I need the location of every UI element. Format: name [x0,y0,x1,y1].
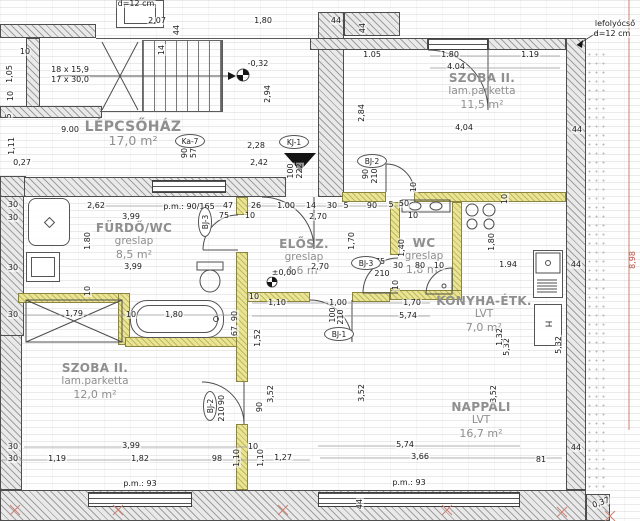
room-material: LVT [451,414,510,427]
dimension-label: 10 [244,212,256,220]
dimension-label: 10 [248,293,260,301]
floor-plan: H [0,0,640,521]
dimension-label: 2,28 [246,142,266,150]
door-tag-bj-3: BJ-3 [198,207,212,237]
dimension-label: 1.00 [276,202,296,210]
dimension-label: 67 [231,325,239,337]
room-area: 16,7 m² [451,427,510,440]
dimension-label: 2,94 [264,84,272,104]
dimension-label: 1,11 [8,136,16,156]
dimension-label: 47 [222,202,234,210]
dimension-label: 30 [7,201,19,209]
dimension-label: lefolyócső [594,20,636,28]
dimension-label: 5,74 [398,312,418,320]
room-area: 8,5 m² [96,248,172,261]
dimension-label: 3,52 [358,383,366,403]
dimension-label: 4.04 [446,63,466,71]
room-material: greslap [96,235,172,248]
dimension-label: 100 [287,162,295,179]
dimension-label: 1,10 [267,299,287,307]
dimension-label: 5 [342,202,349,210]
dimension-label: 75 [218,212,230,220]
hob-burner [483,204,495,216]
door-tag-kj-1: KJ-1 [279,135,309,149]
dimension-label: 2,70 [310,263,330,271]
dimension-label: 3,99 [123,263,143,271]
room-name: FÜRDŐ/WC [96,222,172,235]
dimension-label: 18 x 15,9 [50,66,90,74]
dimension-label: 44 [359,22,367,34]
door-tag-ka-7: Ka-7 [175,134,205,148]
kitchen-sink-bowl [536,253,560,273]
dimension-label: 44 [571,126,583,134]
room-name: SZOBA II. [61,362,128,375]
dimension-label: 10 [501,193,509,205]
dimension-label: 10 [19,48,31,56]
dimension-label: 90 [218,394,226,406]
dimension-label: 10 [433,262,445,270]
dimension-label: 3,99 [121,213,141,221]
room-label: NAPPALILVT16,7 m² [451,401,510,440]
dimension-label: 3,99 [121,442,141,450]
dimension-label: 1,79 [64,310,84,318]
dimension-label: 1,70 [348,231,356,251]
toilet-tank [197,262,223,270]
dimension-label: 2,62 [86,202,106,210]
sink-drain [546,261,551,266]
door-tag-bj-1: BJ-1 [324,327,354,341]
dimension-label: 5 [5,112,13,119]
dimension-label: 3,66 [410,453,430,461]
dimension-label: 210 [373,270,390,278]
dimension-label: 14 [305,202,317,210]
dimension-label: 57 [190,147,198,159]
dimension-label: 90 [181,147,189,159]
tub-drain [214,317,219,322]
hob-burner [467,219,477,229]
dimension-label: 210 [218,405,226,422]
dimension-label: ±0,00 [271,269,298,277]
wardrobe-cross [26,300,122,342]
basin-drain [442,284,446,288]
dimension-label: 1,10 [233,448,241,468]
dimension-label: 30 [7,455,19,463]
dimension-label: 44 [356,498,364,510]
dimension-label: 14 [158,44,166,56]
dimension-label: 3,52 [267,384,275,404]
dimension-label: 90 [256,401,264,413]
dimension-label: 10 [7,90,15,102]
dimension-label: 30 [392,262,404,270]
dimension-label: 80 [414,262,426,270]
dimension-label: d=12 cm [117,0,156,8]
dimension-label: 1.80 [440,51,460,59]
hob-burner [466,204,478,216]
dimension-label: 1,05 [6,64,14,84]
dimension-label: 90 [366,202,378,210]
room-area: 12,0 m² [61,388,128,401]
dimension-label: 1,80 [253,17,273,25]
wc-sink-bowl [430,202,442,210]
dimension-label: -0,32 [247,60,270,68]
dimension-label: 210 [371,167,379,184]
dimension-label: d=12 cm [593,30,632,38]
room-name: NAPPALI [451,401,510,414]
dimension-label: 2,42 [249,159,269,167]
dimension-label: 1.05 [362,51,382,59]
dimension-label: 0,27 [12,159,32,167]
dimension-label: 4,04 [454,124,474,132]
room-material: LVT [436,308,532,321]
dimension-label: 1.94 [498,261,518,269]
room-name: KONYHA-ÉTK. [436,295,532,308]
dimension-label: 81 [535,456,547,464]
room-name: SZOBA II. [448,72,515,85]
dimension-label: 30 [7,214,19,222]
room-label: LÉPCSŐHÁZ17,0 m² [85,121,182,147]
dimension-label: 26 [250,202,262,210]
room-label: SZOBA II.lam.parketta12,0 m² [61,362,128,401]
dimension-label: 30 [326,202,338,210]
room-name: WC [405,237,444,250]
dimension-label: 10 [84,285,92,297]
dimension-label: 1,52 [254,328,262,348]
dimension-label: 5,74 [395,441,415,449]
dimension-label: 210 [337,308,345,325]
dimension-label: 1,27 [273,454,293,462]
room-area: 7,0 m² [436,321,532,334]
dimension-label: 5,32 [555,335,563,355]
room-material: lam.parketta [448,85,515,98]
dimension-label: 1,40 [398,238,406,258]
walk-line-arrowhead [228,72,236,80]
room-area: 17,0 m² [85,134,182,147]
door-tag-bj-2: BJ-2 [357,154,387,168]
dimension-label: 5 [387,201,394,209]
dimension-label: 1,10 [257,448,265,468]
sink-drainer-lines [537,280,557,292]
wc-sink-bowl [409,202,421,210]
dimension-label: 9.00 [60,126,80,134]
dimension-label: 44 [330,17,342,25]
dimension-label: 1.19 [520,51,540,59]
dimension-label: 44 [570,444,582,452]
dimension-label: 3,52 [490,384,498,404]
room-label: FÜRDŐ/WCgreslap8,5 m² [96,222,172,261]
dimension-label: 50 [398,200,410,208]
toilet-bowl [200,270,220,292]
room-label: KONYHA-ÉTK.LVT7,0 m² [436,295,532,334]
dimension-label: 2,70 [308,213,328,221]
dimension-label: 10 [407,212,419,220]
dimension-label: 1,32 [496,327,504,347]
dimension-label: 30 [7,264,19,272]
room-material: lam.parketta [61,375,128,388]
dimension-label: 2,07 [147,17,167,25]
door-tag-bj-3: BJ-3 [351,256,381,270]
dimension-label: 1,80 [488,232,496,252]
room-label: SZOBA II.lam.parketta11,5 m² [448,72,515,111]
dimension-label: 2,84 [358,103,366,123]
dimension-label: 17 x 30,0 [50,76,90,84]
room-name: ELŐSZ. [279,238,329,251]
shower-drain [45,218,55,228]
dimension-label: 1.80 [84,231,92,251]
dimension-label: 30 [7,311,19,319]
dimension-label: 1,80 [164,311,184,319]
dimension-label: 90 [362,168,370,180]
dimension-label: 30 [7,443,19,451]
room-label: WCgreslap1,8 m² [405,237,444,276]
dimension-label: 1,82 [130,455,150,463]
dimension-label: 44 [173,24,181,36]
dimension-label: p.m.: 93 [122,480,157,488]
dimension-label: 8,98 [629,250,637,270]
dimension-label: 10 [392,279,400,291]
dimension-label: 90 [231,310,239,322]
dimension-label: 1,19 [47,455,67,463]
hob-burner [484,219,494,229]
dimension-label: p.m.: 93 [391,479,426,487]
dimension-label: 44 [570,261,582,269]
door-tag-bj-2: BJ-2 [203,391,217,421]
dimension-label: 222 [296,162,304,179]
room-area: 11,5 m² [448,98,515,111]
dimension-label: 10 [125,311,137,319]
dimension-label: 5,32 [503,337,511,357]
dimension-label: 98 [211,455,223,463]
dimension-label: 10 [410,181,418,193]
dimension-label: 1,70 [402,299,422,307]
